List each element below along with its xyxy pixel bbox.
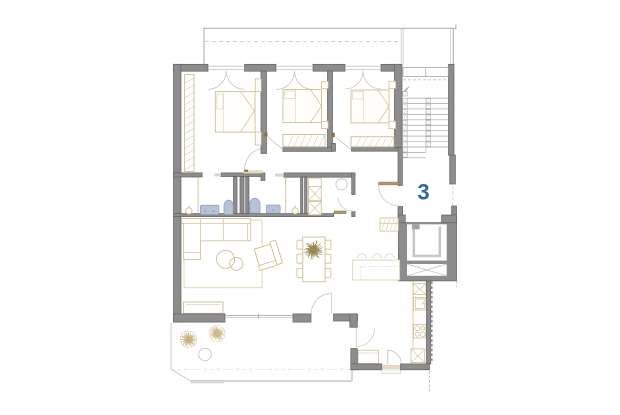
svg-text:3: 3 xyxy=(417,180,429,205)
